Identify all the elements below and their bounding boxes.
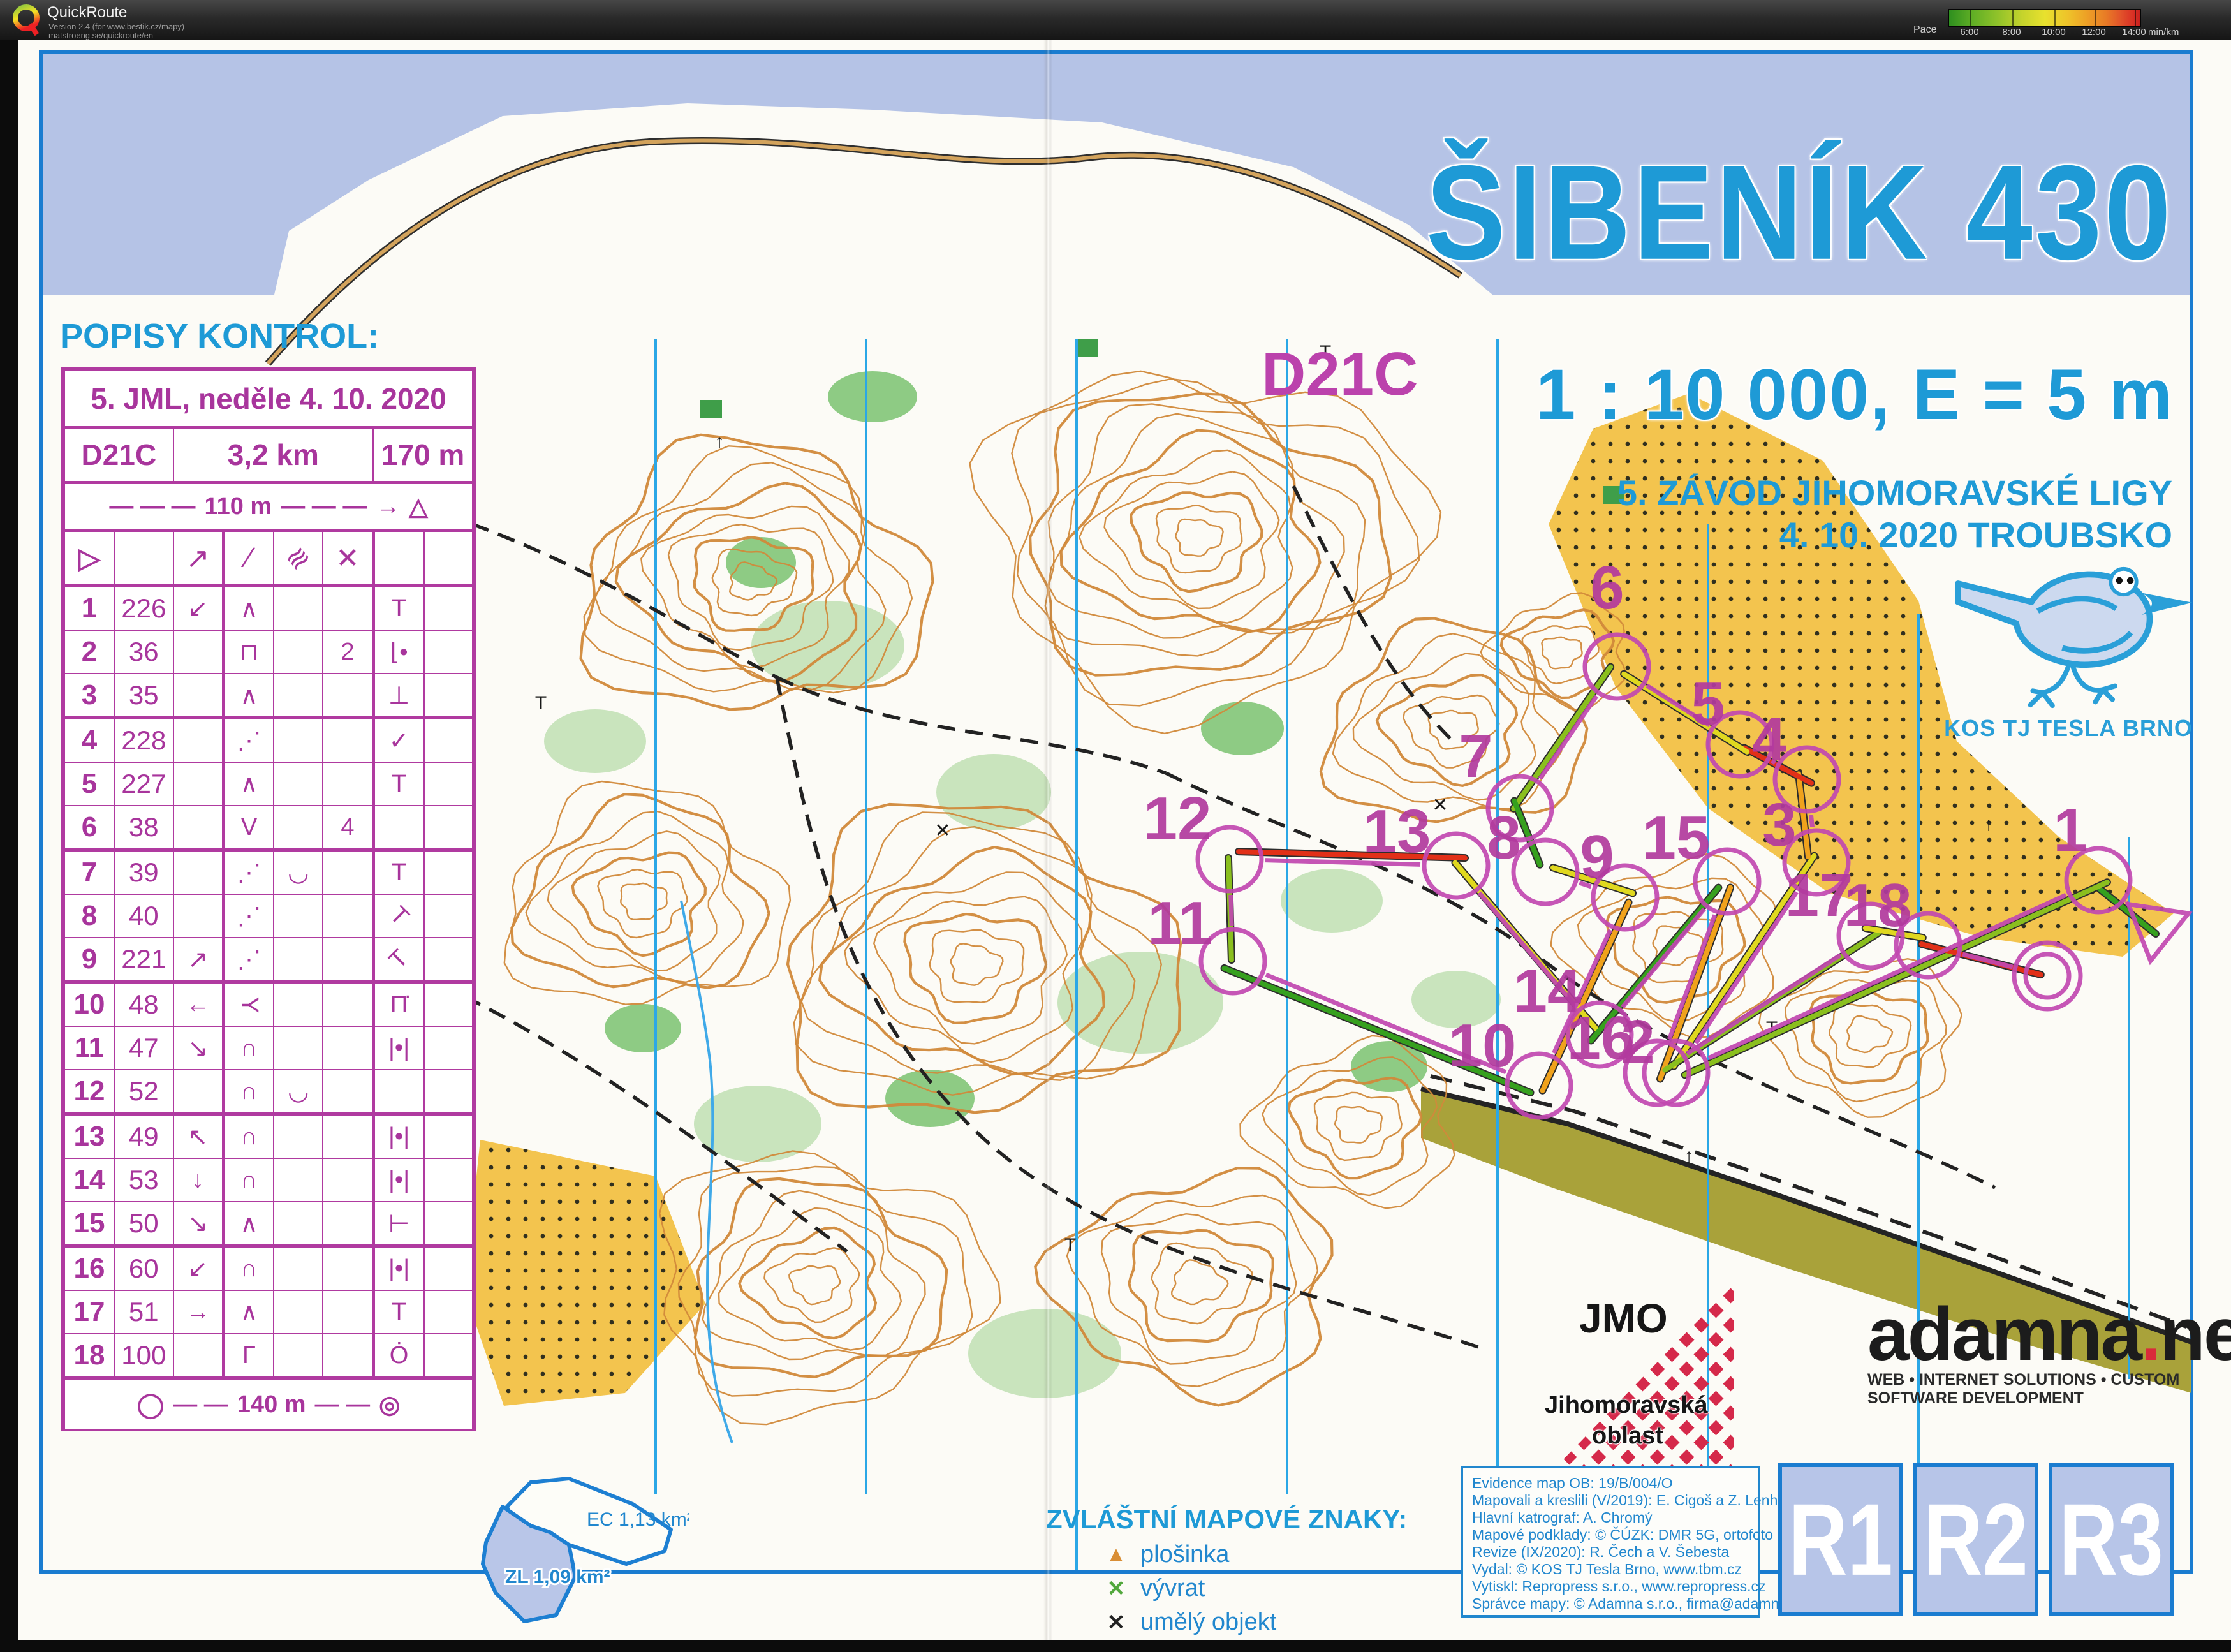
embargo-area-minimap: EC 1,13 km² ZL 1,09 km² xyxy=(472,1467,689,1652)
pace-tick-label: 14:00 xyxy=(2122,27,2146,38)
symbol-cell: ⋰ xyxy=(223,850,274,895)
legend-item: ✕vývrat xyxy=(1103,1575,1407,1602)
control-code-cell: 228 xyxy=(114,718,173,763)
course-leg-line xyxy=(1540,696,1597,779)
control-number-cell: 7 xyxy=(63,850,114,895)
control-code-cell: 35 xyxy=(114,674,173,718)
control-number-cell: 16 xyxy=(63,1246,114,1291)
card-row: 1252∩◡ xyxy=(63,1070,474,1114)
symbol-cell xyxy=(173,674,224,718)
dash-decoration: — — — xyxy=(109,493,195,520)
control-number-label: 12 xyxy=(1144,785,1212,853)
imprint-line: Mapovali a kreslili (V/2019): E. Cigoš a… xyxy=(1472,1492,1749,1509)
control-code-cell: 51 xyxy=(114,1290,173,1334)
symbol-cell: ✕ xyxy=(323,531,373,586)
symbol-cell xyxy=(274,1026,323,1070)
relay-box-r2: R2 xyxy=(1913,1463,2038,1616)
card-row: 1660↙∩|•| xyxy=(63,1246,474,1291)
control-descriptions-heading: POPISY KONTROL: xyxy=(60,316,379,356)
symbol-cell xyxy=(424,531,474,586)
control-number-label: 17 xyxy=(1785,861,1853,929)
imprint-line: Evidence map OB: 19/B/004/O xyxy=(1472,1475,1749,1492)
sponsor-tagline: WEB • INTERNET SOLUTIONS • CUSTOM SOFTWA… xyxy=(1867,1371,2225,1408)
imprint-line: Mapové podklady: © ČÚZK: DMR 5G, ortofot… xyxy=(1472,1526,1749,1544)
card-start-distance-row: — — — 110 m — — — → △ xyxy=(63,483,474,531)
club-logo-block: KOS TJ TESLA BRNO xyxy=(1934,550,2202,742)
symbol-cell: T xyxy=(373,850,423,895)
imprint-line: Vydal: © KOS TJ Tesla Brno, www.tbm.cz xyxy=(1472,1561,1749,1578)
symbol-cell: |•| xyxy=(373,1246,423,1291)
control-code-cell: 52 xyxy=(114,1070,173,1114)
card-row: 1147↘∩|•| xyxy=(63,1026,474,1070)
pace-tick-label: 10:00 xyxy=(2042,27,2066,38)
control-code-cell: 53 xyxy=(114,1158,173,1202)
region-logo-name2: oblast xyxy=(1592,1422,1663,1450)
app-title: QuickRoute xyxy=(47,4,127,22)
card-row: 236⊓2⌊• xyxy=(63,630,474,674)
control-number-label: 9 xyxy=(1580,823,1614,891)
control-number-label: 3 xyxy=(1762,791,1796,859)
symbol-cell xyxy=(323,762,373,806)
card-finish-distance-row: ◯— —140 m— —◎ xyxy=(63,1378,474,1431)
control-code-cell: 38 xyxy=(114,806,173,850)
control-number-cell: ▷ xyxy=(63,531,114,586)
map-imprint-box: Evidence map OB: 19/B/004/OMapovali a kr… xyxy=(1461,1466,1760,1618)
gps-route-segment xyxy=(1239,852,1465,858)
control-number-label: 7 xyxy=(1459,722,1492,790)
control-code-cell: 50 xyxy=(114,1202,173,1246)
pace-tick-label: 12:00 xyxy=(2082,27,2106,38)
card-symbol-header-row: ▷↗∕≋✕ xyxy=(63,531,474,586)
legend-item: ▲plošinka xyxy=(1103,1541,1407,1568)
symbol-cell: |•| xyxy=(373,1114,423,1159)
card-row: 1453↓∩|•| xyxy=(63,1158,474,1202)
symbol-cell xyxy=(424,630,474,674)
symbol-cell: ∩ xyxy=(223,1026,274,1070)
card-row: 840⋰T xyxy=(63,894,474,938)
control-number-label: 4 xyxy=(1752,705,1786,774)
card-event-text: 5. JML, neděle 4. 10. 2020 xyxy=(63,369,474,427)
symbol-cell: ⊥ xyxy=(373,674,423,718)
symbol-cell xyxy=(323,718,373,763)
legend-label: umělý objekt xyxy=(1140,1609,1276,1636)
control-number-label: 10 xyxy=(1448,1012,1517,1080)
control-number-cell: 15 xyxy=(63,1202,114,1246)
symbol-cell xyxy=(323,1070,373,1114)
control-code-cell: 221 xyxy=(114,938,173,982)
symbol-cell: ⊓ xyxy=(223,630,274,674)
control-number-label: 6 xyxy=(1590,554,1624,622)
map-paper: ↑✕TTT↑T✕↑ 123456789101112131415161718 ŠI… xyxy=(18,40,2231,1640)
svg-text:T: T xyxy=(1064,1235,1076,1256)
symbol-cell xyxy=(424,982,474,1027)
symbol-cell: ≋ xyxy=(274,531,323,586)
control-code-cell: 226 xyxy=(114,586,173,631)
symbol-cell xyxy=(424,674,474,718)
symbol-cell: |•| xyxy=(373,1158,423,1202)
relay-box-r1: R1 xyxy=(1778,1463,1903,1616)
symbol-cell xyxy=(323,938,373,982)
symbol-cell xyxy=(274,1290,323,1334)
symbol-cell: 4 xyxy=(323,806,373,850)
symbol-cell: Π̇ xyxy=(373,982,423,1027)
imprint-line: Revize (IX/2020): R. Čech a V. Šebesta xyxy=(1472,1544,1749,1561)
control-number-cell: 2 xyxy=(63,630,114,674)
pace-tick xyxy=(2135,10,2136,26)
symbol-cell xyxy=(424,1246,474,1291)
symbol-cell xyxy=(173,630,224,674)
symbol-cell: ← xyxy=(173,982,224,1027)
symbol-cell xyxy=(323,674,373,718)
event-title: 5. ZÁVOD JIHOMORAVSKÉ LIGY 4. 10. 2020 T… xyxy=(1617,472,2172,556)
finish-circle-icon: ◎ xyxy=(379,1390,400,1419)
svg-text:✕: ✕ xyxy=(1432,795,1448,816)
symbol-cell: ∩ xyxy=(223,1070,274,1114)
control-number-label: 1 xyxy=(2053,796,2087,864)
sponsor-logo-name: adamna.net xyxy=(1867,1299,2225,1369)
symbol-cell xyxy=(173,762,224,806)
symbol-cell xyxy=(424,1158,474,1202)
symbol-cell: ◡ xyxy=(274,850,323,895)
pace-scale: Pace 6:008:0010:0012:0014:00 min/km xyxy=(1913,4,2220,38)
pace-tick xyxy=(2054,10,2056,26)
club-logo-text: KOS TJ TESLA BRNO xyxy=(1934,715,2202,742)
app-version: Version 2.4 (for www.bestik.cz/mapy) xyxy=(48,22,184,31)
pace-tick xyxy=(1970,10,1971,26)
symbol-cell: ⊢ xyxy=(373,1202,423,1246)
symbol-cell xyxy=(274,938,323,982)
control-number-label: 16 xyxy=(1567,1004,1635,1072)
symbol-cell: ◡ xyxy=(274,1070,323,1114)
symbol-cell xyxy=(424,1202,474,1246)
symbol-cell xyxy=(274,1246,323,1291)
symbol-cell xyxy=(373,531,423,586)
symbol-cell xyxy=(424,1334,474,1378)
event-line-1: 5. ZÁVOD JIHOMORAVSKÉ LIGY xyxy=(1617,472,2172,514)
symbol-cell: ↗ xyxy=(173,531,224,586)
card-row: 18100ΓȮ xyxy=(63,1334,474,1378)
map-title: ŠIBENÍK 430 xyxy=(1426,135,2174,290)
symbol-cell xyxy=(274,674,323,718)
app-url: matstroeng.se/quickroute/en xyxy=(48,31,153,40)
card-row: 1048←YΠ̇ xyxy=(63,982,474,1027)
symbol-cell xyxy=(274,718,323,763)
control-number-cell: 11 xyxy=(63,1026,114,1070)
control-code-cell: 36 xyxy=(114,630,173,674)
svg-text:↑: ↑ xyxy=(1984,814,1994,835)
symbol-cell: ⋰ xyxy=(223,718,274,763)
control-number-cell: 6 xyxy=(63,806,114,850)
symbol-cell xyxy=(323,982,373,1027)
card-row: 5227∧T xyxy=(63,762,474,806)
start-triangle-icon: △ xyxy=(409,492,427,521)
card-climb: 170 m xyxy=(373,427,474,483)
control-code-cell: 40 xyxy=(114,894,173,938)
symbol-cell xyxy=(173,1334,224,1378)
symbol-cell: ✓ xyxy=(373,718,423,763)
symbol-cell: ∧ xyxy=(223,762,274,806)
control-number-cell: 1 xyxy=(63,586,114,631)
card-row: 335∧⊥ xyxy=(63,674,474,718)
symbol-cell: ∩ xyxy=(223,1246,274,1291)
symbol-cell: 2 xyxy=(323,630,373,674)
course-leg-line xyxy=(1231,895,1232,926)
sponsor-logo-block: adamna.net WEB • INTERNET SOLUTIONS • CU… xyxy=(1867,1299,2225,1408)
symbol-cell xyxy=(274,630,323,674)
symbol-cell xyxy=(323,1114,373,1159)
symbol-cell: ↓ xyxy=(173,1158,224,1202)
blackbird-logo-icon xyxy=(1934,550,2202,709)
symbol-cell: ↘ xyxy=(173,1026,224,1070)
course-class-map-label: D21C xyxy=(1262,339,1418,409)
pace-gradient-bar[interactable] xyxy=(1948,9,2141,27)
symbol-cell xyxy=(173,718,224,763)
symbol-cell: ∧ xyxy=(223,1202,274,1246)
symbol-cell: ↖ xyxy=(173,1114,224,1159)
pace-tick xyxy=(2095,10,2096,26)
symbol-cell xyxy=(323,1246,373,1291)
symbol-cell xyxy=(373,1070,423,1114)
region-logo-block: JMO Jihomoravská oblast xyxy=(1542,1283,1740,1475)
control-number-label: 15 xyxy=(1642,804,1711,872)
control-code-cell: 39 xyxy=(114,850,173,895)
control-number-cell: 8 xyxy=(63,894,114,938)
pace-tick xyxy=(2012,10,2014,26)
pace-tick-label: 6:00 xyxy=(1960,27,1978,38)
symbol-cell xyxy=(373,806,423,850)
symbol-cell xyxy=(274,1334,323,1378)
legend-symbol-icon: ✕ xyxy=(1103,1610,1129,1635)
card-event-row: 5. JML, neděle 4. 10. 2020 xyxy=(63,369,474,427)
symbol-cell: V xyxy=(223,806,274,850)
symbol-cell xyxy=(274,586,323,631)
zl-area-label: ZL 1,09 km² xyxy=(505,1567,610,1588)
symbol-cell: T xyxy=(373,894,423,938)
svg-text:↑: ↑ xyxy=(1684,1146,1694,1167)
symbol-cell xyxy=(274,1202,323,1246)
course-leg-line xyxy=(1811,815,1812,827)
symbol-cell: Y xyxy=(223,982,274,1027)
symbol-cell: T xyxy=(373,762,423,806)
control-number-cell: 10 xyxy=(63,982,114,1027)
symbol-cell: T xyxy=(373,938,423,982)
card-row: 1751→∧T xyxy=(63,1290,474,1334)
symbol-cell: ∧ xyxy=(223,586,274,631)
imprint-line: Správce mapy: © Adamna s.r.o., firma@ada… xyxy=(1472,1595,1749,1612)
symbol-cell xyxy=(274,762,323,806)
quickroute-logo-icon xyxy=(10,3,45,40)
control-code-cell: 227 xyxy=(114,762,173,806)
symbol-cell xyxy=(424,586,474,631)
imprint-line: Hlavní katrograf: A. Chromý xyxy=(1472,1509,1749,1526)
symbol-cell xyxy=(424,1026,474,1070)
control-code-cell: 47 xyxy=(114,1026,173,1070)
svg-text:↑: ↑ xyxy=(715,431,725,452)
symbol-cell xyxy=(323,850,373,895)
symbol-cell xyxy=(323,894,373,938)
legend-symbol-icon: ✕ xyxy=(1103,1576,1129,1602)
symbol-cell: ∧ xyxy=(223,674,274,718)
symbol-cell xyxy=(323,1158,373,1202)
legend-item: ✕umělý objekt xyxy=(1103,1609,1407,1636)
svg-text:T: T xyxy=(535,693,547,714)
dash-decoration: — — xyxy=(315,1391,371,1419)
control-number-cell: 4 xyxy=(63,718,114,763)
symbol-cell xyxy=(274,894,323,938)
start-circle-icon: ◯ xyxy=(137,1390,165,1419)
special-symbols-legend: ZVLÁŠTNÍ MAPOVÉ ZNAKY: ▲plošinka✕vývrat✕… xyxy=(1046,1504,1407,1636)
symbol-cell xyxy=(323,1334,373,1378)
region-logo-abbr: JMO xyxy=(1579,1295,1668,1342)
symbol-cell: ↗ xyxy=(173,938,224,982)
symbol-cell xyxy=(274,982,323,1027)
sponsor-name-part2: net xyxy=(2160,1292,2231,1376)
control-number-cell: 9 xyxy=(63,938,114,982)
symbol-cell: ↙ xyxy=(173,586,224,631)
symbol-cell xyxy=(323,1202,373,1246)
control-number-label: 8 xyxy=(1487,804,1520,872)
symbol-cell: T xyxy=(373,1290,423,1334)
sponsor-red-dot: . xyxy=(2140,1292,2160,1376)
symbol-cell xyxy=(424,938,474,982)
symbol-cell: T xyxy=(373,586,423,631)
pace-unit: min/km xyxy=(2148,27,2179,38)
card-row: 638V4 xyxy=(63,806,474,850)
svg-text:✕: ✕ xyxy=(934,820,950,841)
finish-distance: 140 m xyxy=(237,1391,306,1419)
symbol-cell xyxy=(424,806,474,850)
symbol-cell: Γ xyxy=(223,1334,274,1378)
control-code-cell: 100 xyxy=(114,1334,173,1378)
pace-label: Pace xyxy=(1913,24,1936,36)
region-logo-name1: Jihomoravská xyxy=(1545,1392,1708,1419)
control-number-cell: 3 xyxy=(63,674,114,718)
control-number-label: 5 xyxy=(1691,670,1725,738)
symbol-cell xyxy=(274,1158,323,1202)
symbol-cell: ⌊• xyxy=(373,630,423,674)
screenshot-root: { "window": { "app_title": "QuickRoute",… xyxy=(0,0,2231,1640)
control-code-cell xyxy=(114,531,173,586)
symbol-cell xyxy=(424,762,474,806)
symbol-cell xyxy=(323,1290,373,1334)
symbol-cell: ∩ xyxy=(223,1158,274,1202)
symbol-cell: Ȯ xyxy=(373,1334,423,1378)
symbol-cell: ∩ xyxy=(223,1114,274,1159)
symbol-cell: |•| xyxy=(373,1026,423,1070)
symbol-cell: ↘ xyxy=(173,1202,224,1246)
control-number-label: 11 xyxy=(1147,889,1212,957)
symbol-cell xyxy=(173,806,224,850)
symbol-cell: ∕ xyxy=(223,531,274,586)
control-number-label: 13 xyxy=(1363,797,1431,866)
imprint-line: Vytiskl: Repropress s.r.o., www.repropre… xyxy=(1472,1578,1749,1595)
symbol-cell xyxy=(173,1070,224,1114)
symbol-cell xyxy=(274,806,323,850)
symbol-cell xyxy=(173,850,224,895)
legend-title: ZVLÁŠTNÍ MAPOVÉ ZNAKY: xyxy=(1046,1504,1407,1535)
start-distance: 110 m xyxy=(205,493,272,520)
symbol-cell: ↙ xyxy=(173,1246,224,1291)
card-row: 4228⋰✓ xyxy=(63,718,474,763)
symbol-cell xyxy=(323,586,373,631)
card-row: 1226↙∧T xyxy=(63,586,474,631)
card-row: 1550↘∧⊢ xyxy=(63,1202,474,1246)
symbol-cell: ⋰ xyxy=(223,938,274,982)
card-row: 9221↗⋰T xyxy=(63,938,474,982)
symbol-cell xyxy=(424,1290,474,1334)
control-number-cell: 18 xyxy=(63,1334,114,1378)
ec-area-label: EC 1,13 km² xyxy=(587,1509,689,1530)
dash-decoration: — — xyxy=(173,1391,228,1419)
symbol-cell xyxy=(173,894,224,938)
card-row: 1349↖∩|•| xyxy=(63,1114,474,1159)
symbol-cell xyxy=(424,1070,474,1114)
card-length: 3,2 km xyxy=(173,427,374,483)
symbol-cell xyxy=(274,1114,323,1159)
symbol-cell xyxy=(323,1026,373,1070)
card-class-row: D21C 3,2 km 170 m xyxy=(63,427,474,483)
symbol-cell xyxy=(424,718,474,763)
legend-label: vývrat xyxy=(1140,1575,1205,1602)
control-code-cell: 60 xyxy=(114,1246,173,1291)
card-row: 739⋰◡T xyxy=(63,850,474,895)
control-number-label: 18 xyxy=(1844,871,1912,940)
control-description-sheet: 5. JML, neděle 4. 10. 2020 D21C 3,2 km 1… xyxy=(61,367,476,1431)
card-class: D21C xyxy=(63,427,173,483)
arrow-icon: → xyxy=(376,493,400,520)
map-scale-text: 1 : 10 000, E = 5 m xyxy=(1536,353,2174,436)
control-number-cell: 5 xyxy=(63,762,114,806)
symbol-cell: ∧ xyxy=(223,1290,274,1334)
legend-symbol-icon: ▲ xyxy=(1103,1542,1129,1567)
control-number-cell: 12 xyxy=(63,1070,114,1114)
relay-box-r3: R3 xyxy=(2049,1463,2174,1616)
sponsor-name-part1: adamna xyxy=(1867,1292,2140,1376)
control-number-cell: 14 xyxy=(63,1158,114,1202)
symbol-cell xyxy=(424,894,474,938)
pace-tick-label: 8:00 xyxy=(2002,27,2021,38)
app-title-bar: QuickRoute Version 2.4 (for www.bestik.c… xyxy=(0,0,2231,40)
control-number-cell: 17 xyxy=(63,1290,114,1334)
symbol-cell: ⋰ xyxy=(223,894,274,938)
symbol-cell: → xyxy=(173,1290,224,1334)
relay-boxes: R1R2R3 xyxy=(1778,1463,2174,1616)
control-number-cell: 13 xyxy=(63,1114,114,1159)
control-code-cell: 49 xyxy=(114,1114,173,1159)
control-code-cell: 48 xyxy=(114,982,173,1027)
course-leg-line xyxy=(1962,954,2013,967)
dash-decoration: — — — xyxy=(281,493,367,520)
symbol-cell xyxy=(424,1114,474,1159)
symbol-cell xyxy=(424,850,474,895)
legend-label: plošinka xyxy=(1140,1541,1229,1568)
